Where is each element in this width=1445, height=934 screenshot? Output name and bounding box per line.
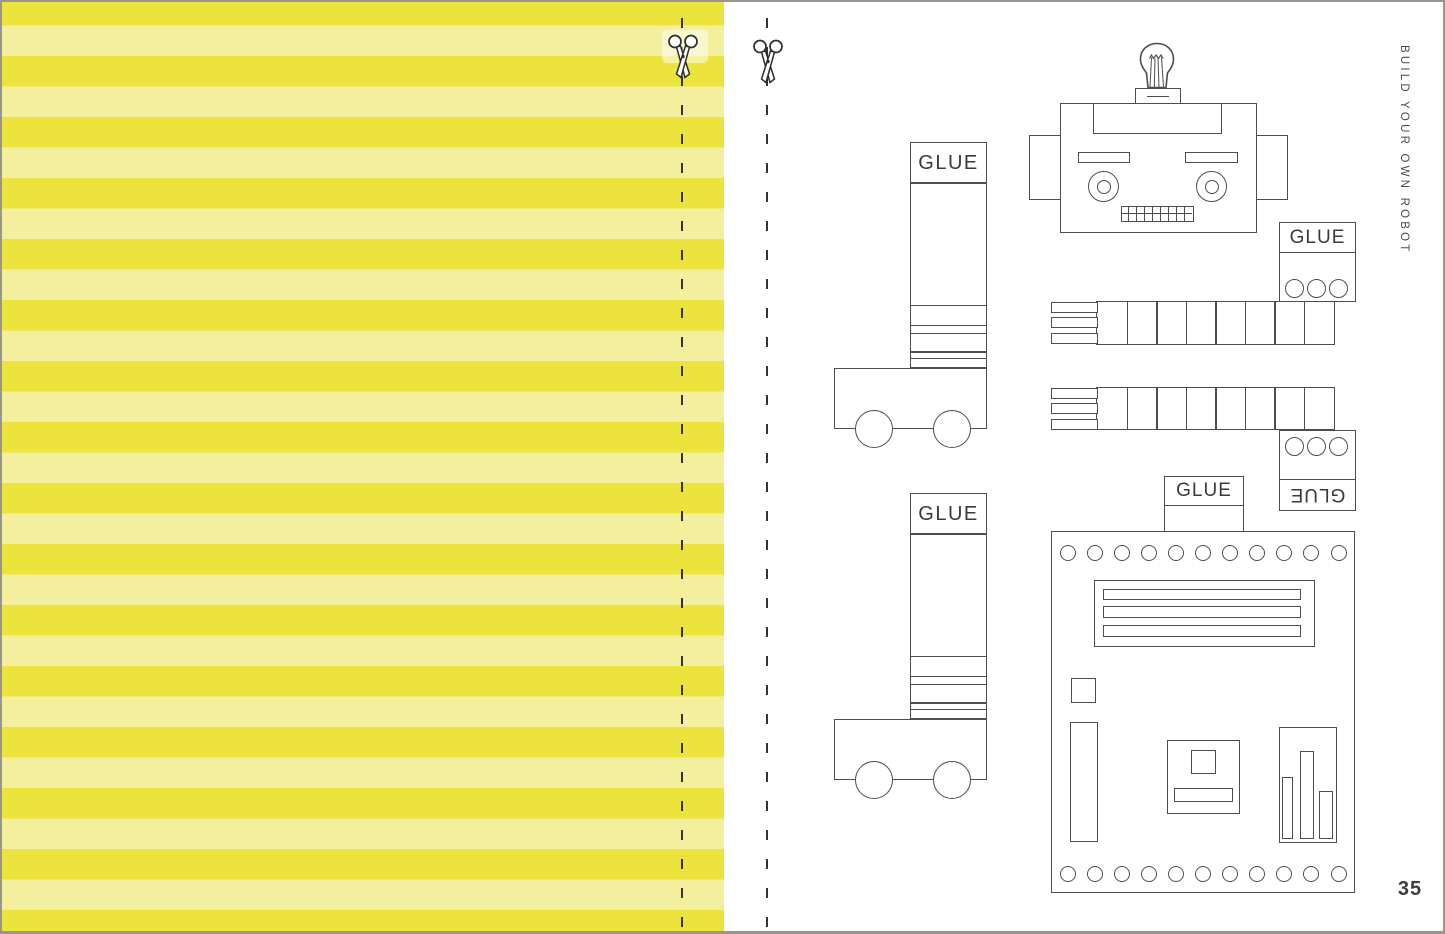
fold-line	[1304, 302, 1306, 344]
glue-tab-label: GLUE	[911, 494, 986, 534]
gauge-panel	[1279, 727, 1337, 843]
light-bulb-icon	[1136, 42, 1178, 89]
gauge-bar	[1319, 791, 1333, 839]
fold-line	[911, 656, 986, 658]
forehead-panel	[1093, 104, 1222, 134]
fold-line	[1215, 302, 1217, 344]
rivet-hole	[1331, 545, 1347, 561]
rivet-hole	[1114, 545, 1130, 561]
mouth-cell	[1161, 214, 1169, 221]
mouth-cell	[1185, 214, 1193, 221]
leg1-column: GLUE	[910, 142, 987, 368]
control-module	[1167, 740, 1240, 814]
fold-line	[1215, 388, 1217, 429]
scissors-icon	[664, 33, 702, 79]
rivet-hole	[1276, 866, 1292, 882]
mouth-cell	[1122, 207, 1130, 214]
mouth-cell	[1153, 207, 1161, 214]
arm1-finger-tab	[1051, 333, 1098, 344]
fold-line	[1156, 302, 1158, 344]
gauge-bar	[1300, 751, 1314, 839]
mouth-cell	[1129, 214, 1137, 221]
arm2-finger-tab	[1051, 403, 1098, 414]
glue-tab-label: GLUE	[1165, 477, 1243, 505]
glue-tab-label: GLUE	[911, 143, 986, 183]
robot-head	[1060, 103, 1257, 233]
fold-line	[911, 325, 986, 327]
mouth-cell	[1169, 207, 1177, 214]
arm1-strip	[1096, 301, 1335, 345]
leg2-wheel-left	[855, 761, 893, 799]
fold-line	[1156, 388, 1158, 429]
fold-line	[911, 358, 986, 360]
arm1-finger-tab	[1051, 302, 1098, 313]
module-button	[1191, 750, 1216, 774]
fold-line	[1274, 388, 1276, 429]
fold-line	[1186, 388, 1188, 429]
fold-line	[911, 702, 986, 704]
robot-mouth	[1121, 206, 1194, 222]
leg2-wheel-right	[933, 761, 971, 799]
rivet-hole	[1087, 545, 1103, 561]
mouth-cell	[1177, 207, 1185, 214]
hand-hole	[1285, 437, 1304, 456]
speaker-grille	[1094, 580, 1315, 647]
pupil-left	[1097, 180, 1111, 194]
fold-line	[1274, 302, 1276, 344]
hand-hole	[1329, 279, 1348, 298]
rivet-hole	[1303, 545, 1319, 561]
hand-hole	[1307, 437, 1326, 456]
fold-line	[911, 709, 986, 711]
rivet-hole	[1087, 866, 1103, 882]
rivet-hole	[1060, 545, 1076, 561]
bulb-socket	[1135, 88, 1181, 104]
fold-line	[1127, 388, 1129, 429]
mouth-cell	[1185, 207, 1193, 214]
rivet-hole	[1222, 866, 1238, 882]
fold-line	[911, 333, 986, 335]
striped-panel	[2, 2, 724, 931]
rivet-hole	[1249, 545, 1265, 561]
fold-line	[1245, 388, 1247, 429]
cut-line-left	[681, 18, 683, 931]
slot-panel	[1070, 722, 1098, 842]
scissors-icon	[749, 38, 787, 84]
leg1-wheel-left	[855, 410, 893, 448]
mouth-cell	[1122, 214, 1130, 221]
grille-bar	[1103, 625, 1301, 637]
hand-hole	[1307, 279, 1326, 298]
mouth-cell	[1145, 207, 1153, 214]
eye-left	[1088, 171, 1119, 202]
mouth-cell	[1145, 214, 1153, 221]
rivet-hole	[1168, 545, 1184, 561]
page-number: 35	[1390, 878, 1430, 901]
grille-bar	[1103, 589, 1301, 600]
gauge-bar	[1282, 777, 1293, 839]
hand-hole	[1285, 279, 1304, 298]
arm2-strip	[1096, 387, 1335, 430]
arm1-hand-tab: GLUE	[1279, 222, 1356, 302]
body-glue-tab: GLUE	[1164, 476, 1244, 532]
mouth-cell	[1153, 214, 1161, 221]
leg1-wheel-right	[933, 410, 971, 448]
fold-line	[911, 305, 986, 307]
fold-line	[1186, 302, 1188, 344]
glue-tab-label-upside-down: GLUE	[1280, 479, 1355, 509]
arm2-finger-tab	[1051, 388, 1098, 399]
eyebrow-left	[1078, 152, 1130, 163]
rivet-hole	[1303, 866, 1319, 882]
activity-book-page: GLUE GLUE GLUE GLUE	[0, 0, 1445, 934]
robot-body	[1051, 531, 1355, 893]
small-button	[1071, 678, 1096, 703]
glue-tab-label: GLUE	[1280, 223, 1355, 252]
arm1-finger-tab	[1051, 317, 1098, 328]
fold-line	[911, 684, 986, 686]
mouth-cell	[1137, 207, 1145, 214]
cut-line-right	[766, 18, 768, 931]
robot-ear-right	[1256, 135, 1288, 200]
leg2-column: GLUE	[910, 493, 987, 719]
eyebrow-right	[1185, 152, 1238, 163]
mouth-cell	[1169, 214, 1177, 221]
arm2-hand-tab: GLUE	[1279, 430, 1356, 511]
rivet-hole	[1222, 545, 1238, 561]
socket-line	[1147, 96, 1169, 98]
module-slot	[1174, 788, 1233, 802]
rivet-hole	[1141, 545, 1157, 561]
rivet-hole	[1331, 866, 1347, 882]
mouth-cell	[1137, 214, 1145, 221]
hand-hole	[1329, 437, 1348, 456]
rivet-hole	[1060, 866, 1076, 882]
side-title: BUILD YOUR OWN ROBOT	[1398, 45, 1410, 254]
fold-line	[911, 351, 986, 353]
rivet-hole	[1168, 866, 1184, 882]
fold-line	[1245, 302, 1247, 344]
fold-line	[1304, 388, 1306, 429]
mouth-cell	[1129, 207, 1137, 214]
rivet-hole	[1249, 866, 1265, 882]
arm2-finger-tab	[1051, 419, 1098, 430]
mouth-cell	[1161, 207, 1169, 214]
eye-right	[1196, 171, 1227, 202]
rivet-hole	[1141, 866, 1157, 882]
fold-line	[911, 676, 986, 678]
rivet-hole	[1195, 545, 1211, 561]
robot-ear-left	[1029, 135, 1061, 200]
rivet-hole	[1195, 866, 1211, 882]
grille-bar	[1103, 606, 1301, 618]
pupil-right	[1205, 180, 1219, 194]
rivet-hole	[1114, 866, 1130, 882]
rivet-hole	[1276, 545, 1292, 561]
mouth-cell	[1177, 214, 1185, 221]
fold-line	[1127, 302, 1129, 344]
